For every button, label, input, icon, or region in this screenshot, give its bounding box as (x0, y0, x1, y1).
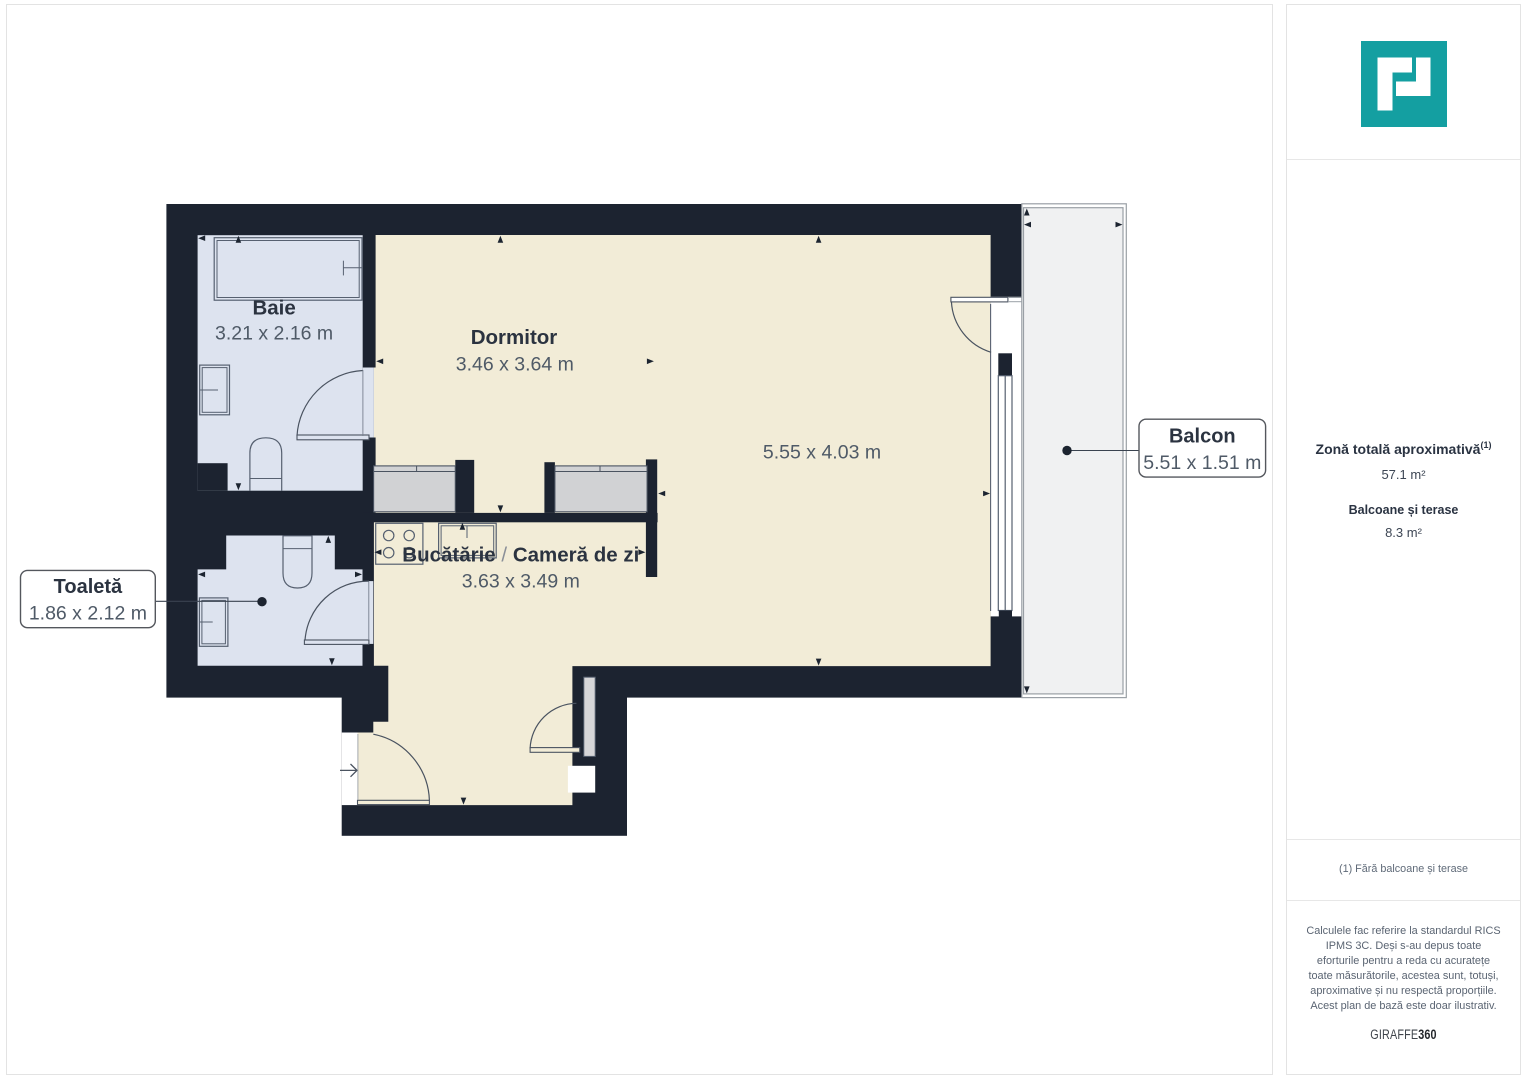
svg-text:Balcon: Balcon (1169, 426, 1236, 448)
svg-text:3.21 x 2.16 m: 3.21 x 2.16 m (215, 323, 333, 345)
svg-text:Toaletă: Toaletă (54, 576, 123, 598)
svg-text:5.55 x 4.03 m: 5.55 x 4.03 m (763, 442, 881, 464)
svg-text:Bucătărie / Cameră de zi: Bucătărie / Cameră de zi (402, 544, 639, 567)
svg-text:5.51 x 1.51 m: 5.51 x 1.51 m (1143, 452, 1261, 474)
svg-text:1.86 x 2.12 m: 1.86 x 2.12 m (29, 603, 147, 625)
svg-text:3.46 x 3.64 m: 3.46 x 3.64 m (456, 354, 574, 376)
svg-text:3.63 x 3.49 m: 3.63 x 3.49 m (462, 571, 580, 593)
svg-text:Baie: Baie (252, 297, 295, 320)
svg-text:Dormitor: Dormitor (471, 326, 558, 349)
